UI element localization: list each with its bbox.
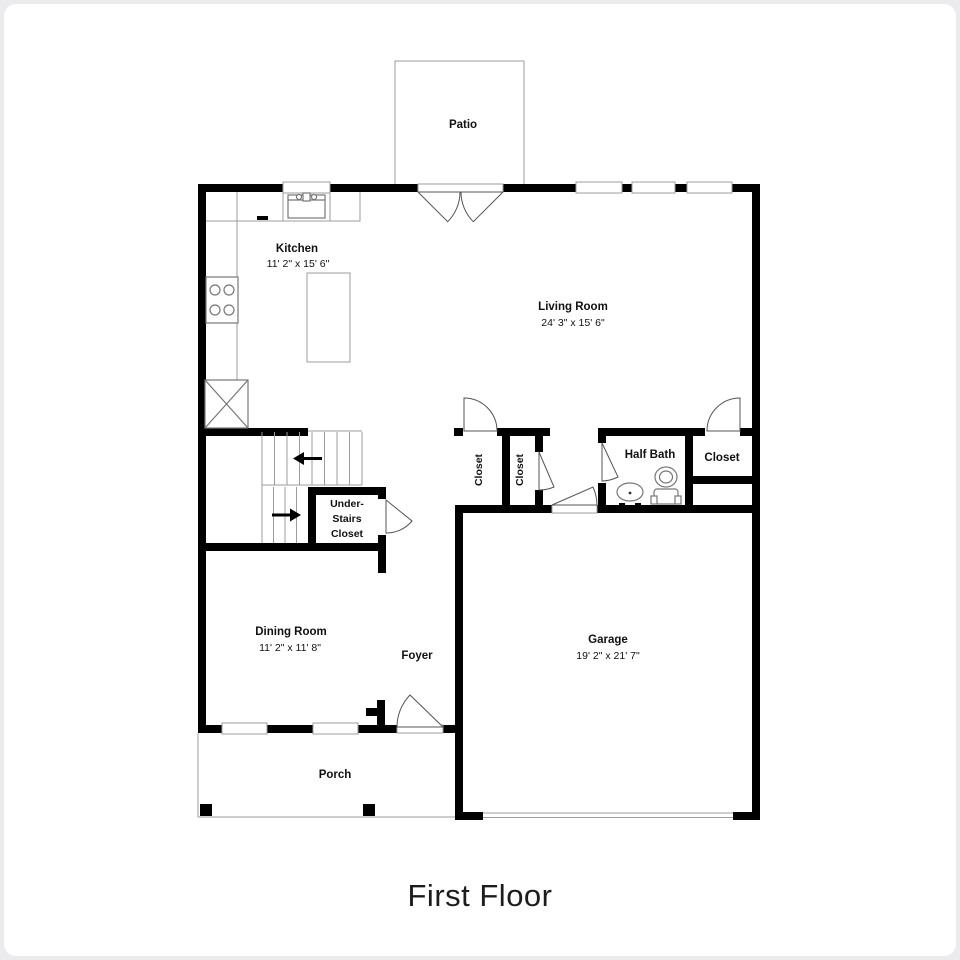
- window: [313, 723, 358, 734]
- window: [283, 182, 330, 193]
- foyer-label: Foyer: [401, 650, 433, 662]
- porch-post-icon: [363, 804, 375, 816]
- porch-post-icon: [200, 804, 212, 816]
- under-stairs-door-icon: [386, 500, 412, 533]
- kitchen-dims: 11' 2" x 15' 6": [267, 258, 330, 270]
- kitchen-label: Kitchen: [276, 243, 318, 255]
- under-stairs-closet-label: Under-: [330, 498, 364, 510]
- under-stairs-closet-label: Closet: [331, 528, 364, 540]
- kitchen-sink-icon: [288, 193, 325, 218]
- dining-room-label: Dining Room: [255, 626, 327, 638]
- garage-entry-door-icon: [552, 487, 597, 505]
- closet-label: Closet: [473, 453, 485, 486]
- half-bath-door-icon: [602, 443, 618, 481]
- closet-door-icon: [539, 452, 554, 490]
- floorplan-title: First Floor: [0, 878, 960, 914]
- bathroom-sink-icon: [617, 483, 643, 508]
- floorplan-drawing: Patio Kitchen 11' 2" x 15' 6" Living Roo…: [0, 0, 960, 960]
- patio-door-right-icon: [461, 192, 503, 222]
- toilet-icon: [651, 467, 681, 504]
- under-stairs-closet-label: Stairs: [332, 513, 361, 525]
- porch-label: Porch: [319, 769, 352, 781]
- closet-door-icon: [707, 398, 740, 431]
- window: [222, 723, 267, 734]
- refrigerator-icon: [205, 380, 248, 428]
- half-bath-label: Half Bath: [625, 449, 675, 461]
- patio-door-left-icon: [418, 192, 460, 222]
- living-room-dims: 24' 3" x 15' 6": [541, 317, 605, 329]
- stair-direction-arrow-up: [293, 452, 322, 465]
- window: [576, 182, 622, 193]
- range-icon: [206, 277, 238, 323]
- closet-label: Closet: [704, 452, 739, 464]
- garage-dims: 19' 2" x 21' 7": [576, 650, 640, 662]
- dining-room-dims: 11' 2" x 11' 8": [259, 642, 321, 654]
- room-labels: Patio Kitchen 11' 2" x 15' 6" Living Roo…: [255, 119, 740, 781]
- closet-label: Closet: [514, 453, 526, 486]
- patio-label: Patio: [449, 119, 477, 131]
- living-room-label: Living Room: [538, 301, 608, 313]
- kitchen-island: [307, 273, 350, 362]
- window: [687, 182, 732, 193]
- front-door-icon: [397, 695, 443, 727]
- closet-door-icon: [464, 398, 497, 431]
- garage-label: Garage: [588, 634, 628, 646]
- window: [632, 182, 675, 193]
- dishwasher-mark-icon: [257, 216, 268, 220]
